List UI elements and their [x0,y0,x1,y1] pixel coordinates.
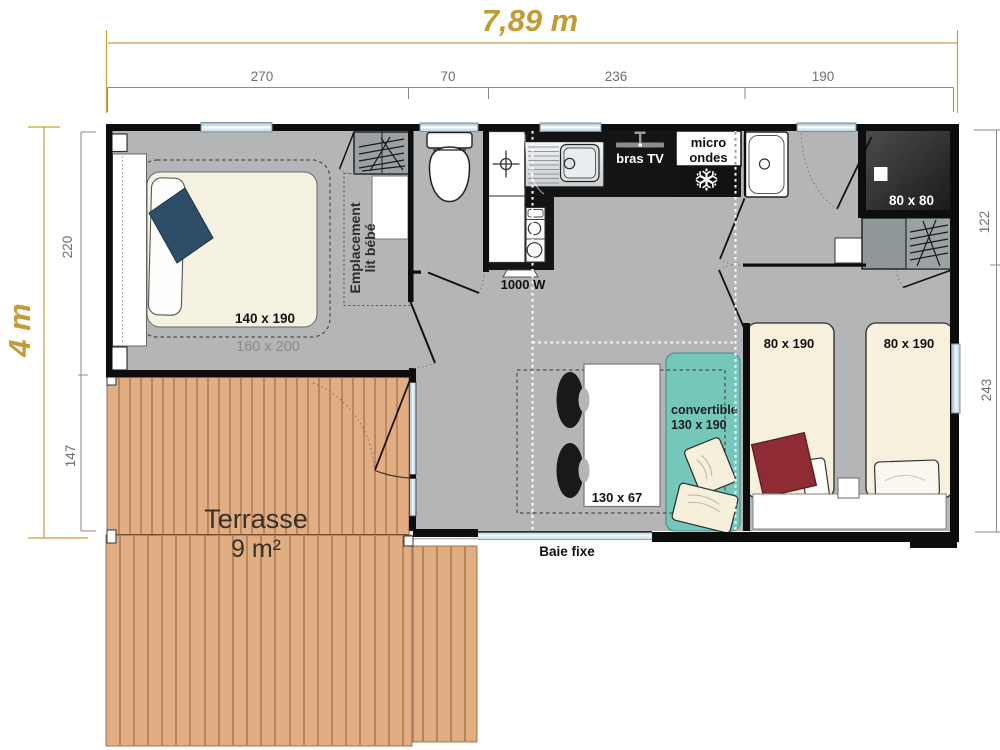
svg-text:140 x 190: 140 x 190 [235,311,295,326]
svg-text:236: 236 [605,69,628,84]
svg-text:122: 122 [977,211,992,234]
svg-text:80 x 190: 80 x 190 [884,336,935,351]
svg-text:80 x 80: 80 x 80 [889,193,934,208]
svg-text:70: 70 [440,69,455,84]
svg-text:Emplacement: Emplacement [347,202,363,293]
svg-text:190: 190 [812,69,835,84]
svg-text:Baie fixe: Baie fixe [539,544,595,559]
svg-text:160 x 200: 160 x 200 [236,339,300,355]
svg-text:Terrasse: Terrasse [204,504,308,534]
svg-text:9 m²: 9 m² [231,535,281,563]
svg-text:130 x 190: 130 x 190 [671,418,727,432]
svg-text:243: 243 [979,379,994,402]
svg-text:270: 270 [251,69,274,84]
svg-text:lit bébé: lit bébé [362,223,378,272]
svg-text:7,89 m: 7,89 m [482,3,579,38]
svg-text:147: 147 [63,445,78,468]
svg-text:micro: micro [691,135,726,150]
svg-text:convertible: convertible [671,403,738,417]
svg-text:130 x 67: 130 x 67 [592,490,643,505]
svg-text:bras TV: bras TV [616,151,664,166]
svg-text:4 m: 4 m [2,303,37,357]
svg-text:1000 W: 1000 W [501,277,547,292]
svg-text:220: 220 [60,236,75,259]
svg-text:ondes: ondes [689,150,727,165]
svg-text:80 x 190: 80 x 190 [764,336,815,351]
